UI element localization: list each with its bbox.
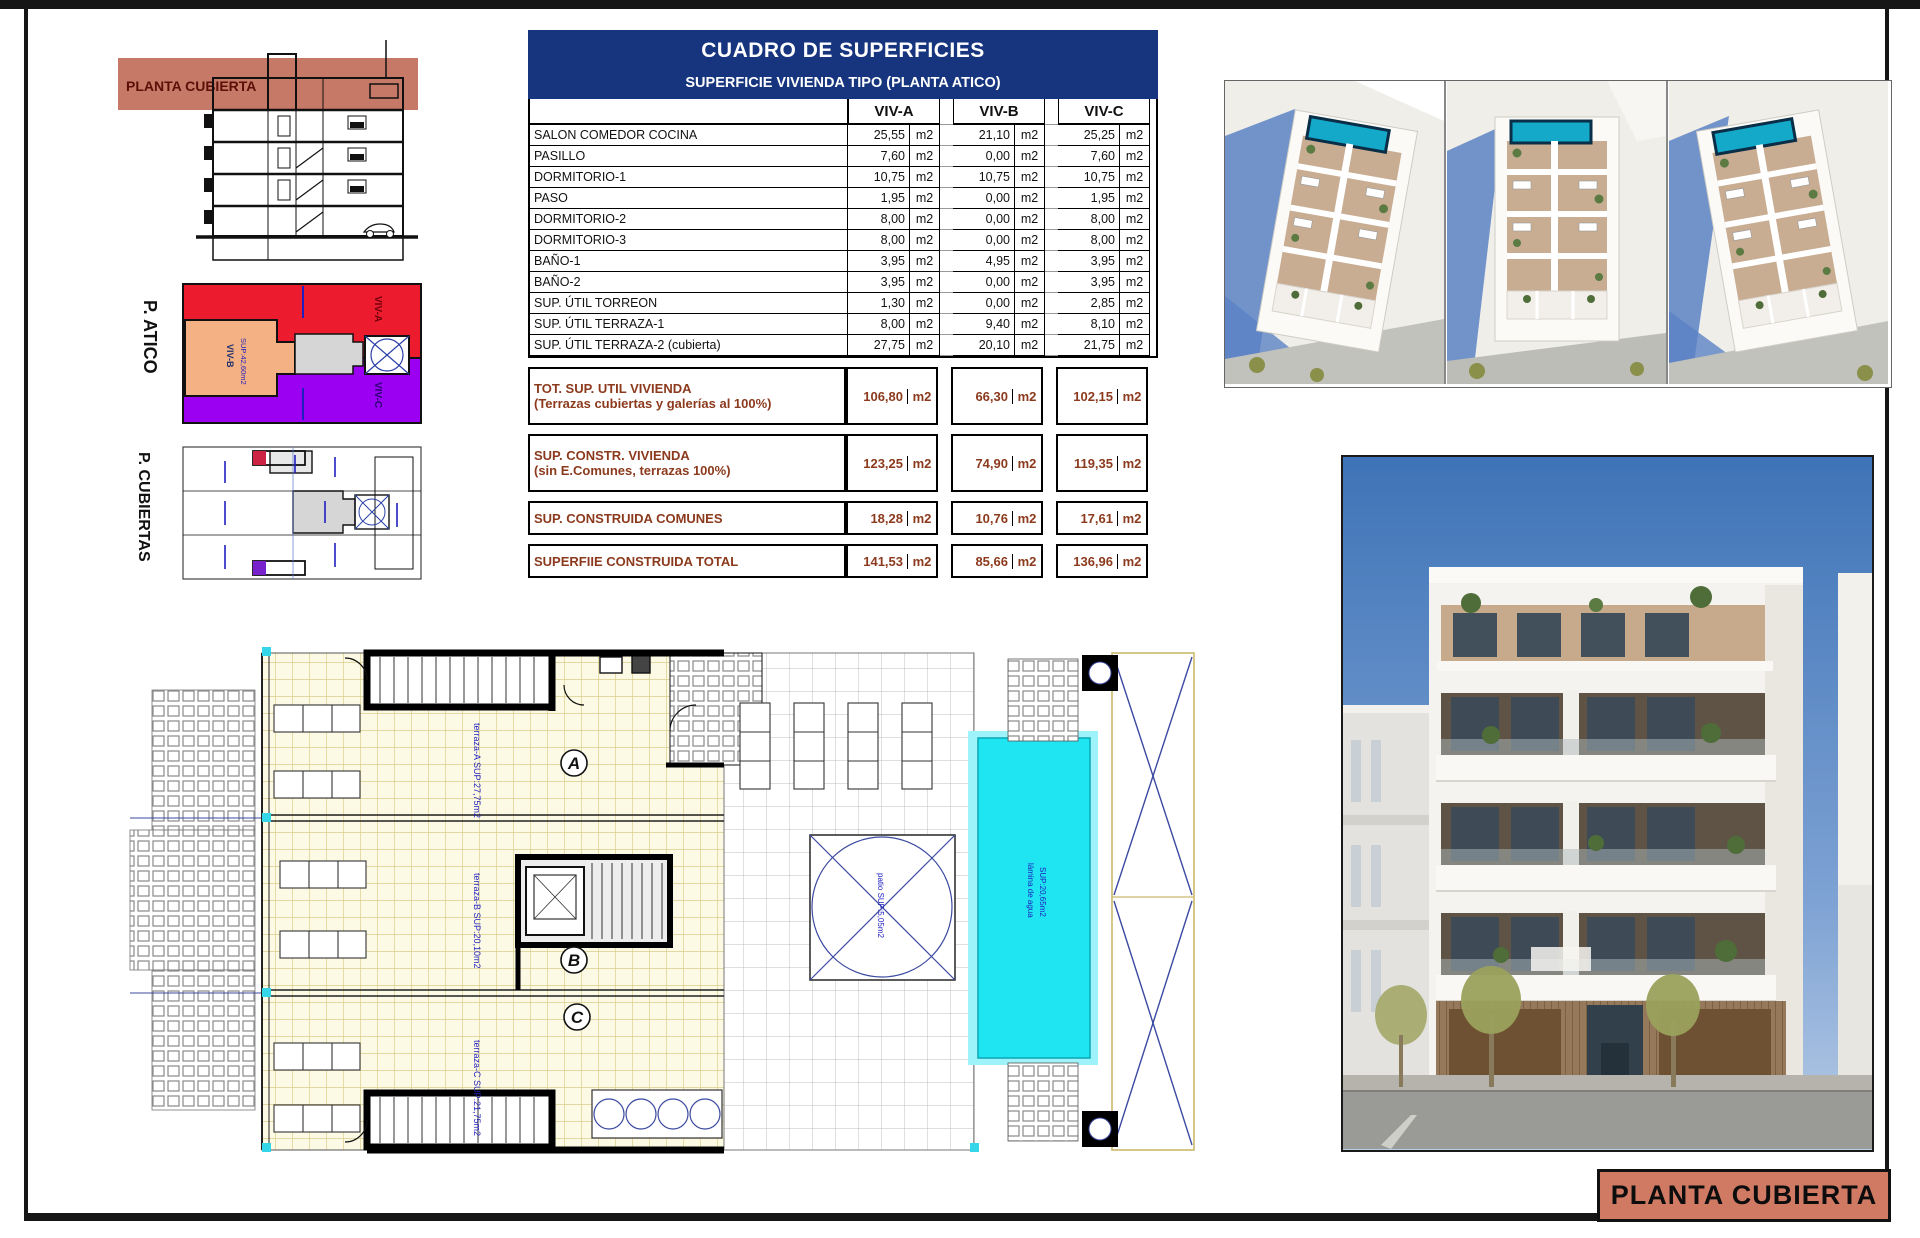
row-label: SUP. ÚTIL TERRAZA-1 xyxy=(530,314,848,335)
table-row: SALON COMEDOR COCINA25,55m221,10m225,25m… xyxy=(530,125,1156,146)
facade-balcony-levels xyxy=(1436,691,1776,1001)
row-gap xyxy=(1045,251,1058,272)
cell-unit-viv-a: m2 xyxy=(910,251,940,272)
summary-value-viv-b: 10,76m2 xyxy=(951,501,1043,535)
summary-value: 17,61 xyxy=(1058,511,1118,526)
cell-value-viv-b: 20,10 xyxy=(953,335,1015,356)
plan-terraza-b-label: terraza-B SUP:20,10m2 xyxy=(472,873,482,969)
row-gap xyxy=(940,146,953,167)
row-label: SUP. ÚTIL TERRAZA-2 (cubierta) xyxy=(530,335,848,356)
facade-right-neighbor xyxy=(1838,573,1872,1149)
cell-unit-viv-c: m2 xyxy=(1120,188,1150,209)
row-label: PASO xyxy=(530,188,848,209)
plan-elevator xyxy=(526,867,584,935)
summary-row: SUPERFIIE CONSTRUIDA TOTAL141,53m285,66m… xyxy=(528,544,1158,578)
cell-value-viv-b: 10,75 xyxy=(953,167,1015,188)
cell-unit-viv-b: m2 xyxy=(1015,230,1045,251)
table-row: PASILLO7,60m20,00m27,60m2 xyxy=(530,146,1156,167)
section-ground xyxy=(196,224,418,238)
cell-value-viv-a: 8,00 xyxy=(848,230,910,251)
table-body: SALON COMEDOR COCINA25,55m221,10m225,25m… xyxy=(530,125,1156,356)
summary-gap xyxy=(938,544,951,578)
summary-value-viv-c: 136,96m2 xyxy=(1056,544,1148,578)
summary-unit: m2 xyxy=(908,456,936,471)
row-label: SUP. ÚTIL TORREON xyxy=(530,293,848,314)
cell-value-viv-a: 25,55 xyxy=(848,125,910,146)
plan-gravel-bottom-right xyxy=(1008,1063,1078,1141)
atico-viv-b-label: VIV-B xyxy=(225,344,235,368)
table-title: CUADRO DE SUPERFICIES xyxy=(528,30,1158,65)
row-label: BAÑO-1 xyxy=(530,251,848,272)
cell-value-viv-b: 0,00 xyxy=(953,188,1015,209)
row-label: DORMITORIO-2 xyxy=(530,209,848,230)
summary-unit: m2 xyxy=(1118,554,1146,569)
atico-color-plan: VIV-A VIV-B SUP:42,60m2 VIV-C xyxy=(175,282,425,425)
row-gap xyxy=(940,167,953,188)
plan-pool-label-1: lámina de agua xyxy=(1026,863,1035,918)
cell-unit-viv-b: m2 xyxy=(1015,167,1045,188)
column-header-viv-a: VIV-A xyxy=(848,99,940,125)
plan-pool-label-2: SUP:20,65m2 xyxy=(1038,867,1047,917)
summary-unit: m2 xyxy=(1118,389,1146,404)
cell-unit-viv-b: m2 xyxy=(1015,251,1045,272)
row-gap xyxy=(1045,314,1058,335)
atico-elevator xyxy=(365,336,409,374)
summary-value-viv-a: 141,53m2 xyxy=(846,544,938,578)
cell-value-viv-c: 10,75 xyxy=(1058,167,1120,188)
cell-unit-viv-b: m2 xyxy=(1015,209,1045,230)
row-gap xyxy=(1045,209,1058,230)
summary-value-viv-c: 102,15m2 xyxy=(1056,367,1148,425)
summary-unit: m2 xyxy=(1013,389,1041,404)
row-gap xyxy=(940,251,953,272)
facade-street xyxy=(1343,1075,1872,1149)
summary-gap xyxy=(938,501,951,535)
row-label: BAÑO-2 xyxy=(530,272,848,293)
cell-unit-viv-b: m2 xyxy=(1015,335,1045,356)
column-header-viv-b: VIV-B xyxy=(953,99,1045,125)
cell-unit-viv-a: m2 xyxy=(910,188,940,209)
summary-gap xyxy=(938,434,951,492)
row-gap xyxy=(1045,146,1058,167)
cell-value-viv-a: 8,00 xyxy=(848,209,910,230)
cubiertas-plan xyxy=(175,443,425,583)
table-row: BAÑO-23,95m20,00m23,95m2 xyxy=(530,272,1156,293)
cell-value-viv-b: 4,95 xyxy=(953,251,1015,272)
summary-value: 141,53 xyxy=(848,554,908,569)
aerial-render-3 xyxy=(1669,81,1888,384)
facade-render xyxy=(1341,455,1874,1152)
cell-unit-viv-c: m2 xyxy=(1120,335,1150,356)
plan-core xyxy=(518,857,670,945)
building-section-drawing: PLANTA CUBIERTA xyxy=(118,28,430,270)
cell-unit-viv-b: m2 xyxy=(1015,188,1045,209)
cubiertas-stair-red xyxy=(253,451,266,465)
plan-patio-label: patio SUP:5,05m2 xyxy=(876,873,885,938)
cell-unit-viv-a: m2 xyxy=(910,335,940,356)
summary-label-line1: SUP. CONSTRUIDA COMUNES xyxy=(534,511,840,526)
cell-unit-viv-a: m2 xyxy=(910,314,940,335)
atico-viv-b-sup: SUP:42,60m2 xyxy=(239,338,248,385)
column-header-viv-c: VIV-C xyxy=(1058,99,1150,125)
row-gap xyxy=(940,230,953,251)
surface-table: CUADRO DE SUPERFICIES SUPERFICIE VIVIEND… xyxy=(528,30,1158,578)
row-gap xyxy=(940,314,953,335)
summary-label-line2: (Terrazas cubiertas y galerías al 100%) xyxy=(534,396,840,411)
cell-unit-viv-b: m2 xyxy=(1015,314,1045,335)
cell-unit-viv-a: m2 xyxy=(910,272,940,293)
cell-value-viv-a: 27,75 xyxy=(848,335,910,356)
table-row: DORMITORIO-38,00m20,00m28,00m2 xyxy=(530,230,1156,251)
cell-value-viv-c: 8,10 xyxy=(1058,314,1120,335)
row-gap xyxy=(940,188,953,209)
cell-value-viv-b: 9,40 xyxy=(953,314,1015,335)
cell-value-viv-b: 21,10 xyxy=(953,125,1015,146)
row-gap xyxy=(1045,167,1058,188)
summary-value: 10,76 xyxy=(953,511,1013,526)
summary-value: 106,80 xyxy=(848,389,908,404)
summary-value-viv-b: 85,66m2 xyxy=(951,544,1043,578)
atico-common-core xyxy=(295,334,363,374)
cell-unit-viv-b: m2 xyxy=(1015,146,1045,167)
summary-value: 102,15 xyxy=(1058,389,1118,404)
plan-water-tanks xyxy=(592,1090,722,1138)
summary-gap xyxy=(1043,501,1056,535)
summary-value-viv-c: 119,35m2 xyxy=(1056,434,1148,492)
cell-value-viv-c: 1,95 xyxy=(1058,188,1120,209)
cell-value-viv-c: 2,85 xyxy=(1058,293,1120,314)
cell-value-viv-a: 1,95 xyxy=(848,188,910,209)
cell-value-viv-a: 10,75 xyxy=(848,167,910,188)
cell-value-viv-b: 0,00 xyxy=(953,209,1015,230)
cell-value-viv-c: 7,60 xyxy=(1058,146,1120,167)
summary-gap xyxy=(938,367,951,425)
atico-viv-c-label: VIV-C xyxy=(372,382,383,408)
row-gap xyxy=(940,125,953,146)
atico-viv-a-label: VIV-A xyxy=(372,296,383,322)
atico-side-label: P. ATICO xyxy=(139,300,160,374)
table-row: SUP. ÚTIL TERRAZA-18,00m29,40m28,10m2 xyxy=(530,314,1156,335)
row-gap xyxy=(1045,293,1058,314)
summary-unit: m2 xyxy=(1013,554,1041,569)
row-gap xyxy=(1045,230,1058,251)
aerial-renders-strip xyxy=(1224,80,1892,388)
cell-value-viv-b: 0,00 xyxy=(953,230,1015,251)
plan-letter-b: B xyxy=(568,951,580,970)
sheet-title-block: PLANTA CUBIERTA xyxy=(1597,1169,1891,1222)
summary-unit: m2 xyxy=(1013,456,1041,471)
row-label: SALON COMEDOR COCINA xyxy=(530,125,848,146)
summary-unit: m2 xyxy=(908,389,936,404)
cell-unit-viv-a: m2 xyxy=(910,167,940,188)
summary-label-line1: SUP. CONSTR. VIVIENDA xyxy=(534,448,840,463)
cell-value-viv-b: 0,00 xyxy=(953,293,1015,314)
aerial-render-1 xyxy=(1225,81,1444,384)
cell-unit-viv-c: m2 xyxy=(1120,293,1150,314)
summary-label-line1: TOT. SUP. UTIL VIVIENDA xyxy=(534,381,840,396)
summary-unit: m2 xyxy=(1118,456,1146,471)
row-gap xyxy=(940,272,953,293)
cell-value-viv-b: 0,00 xyxy=(953,272,1015,293)
sheet-title-label: PLANTA CUBIERTA xyxy=(1611,1180,1877,1211)
summary-unit: m2 xyxy=(1013,511,1041,526)
summary-value: 66,30 xyxy=(953,389,1013,404)
summary-value: 119,35 xyxy=(1058,456,1118,471)
table-row: BAÑO-13,95m24,95m23,95m2 xyxy=(530,251,1156,272)
plan-terraza-a-label: terraza-A SUP:27,75m2 xyxy=(472,723,482,818)
summary-value: 123,25 xyxy=(848,456,908,471)
summary-row: SUP. CONSTR. VIVIENDA(sin E.Comunes, ter… xyxy=(528,434,1158,492)
summary-label-line2: (sin E.Comunes, terrazas 100%) xyxy=(534,463,840,478)
summary-row: TOT. SUP. UTIL VIVIENDA(Terrazas cubiert… xyxy=(528,367,1158,425)
plan-letter-c: C xyxy=(571,1008,584,1027)
cell-value-viv-c: 25,25 xyxy=(1058,125,1120,146)
table-row: DORMITORIO-110,75m210,75m210,75m2 xyxy=(530,167,1156,188)
summary-gap xyxy=(1043,544,1056,578)
cell-value-viv-c: 21,75 xyxy=(1058,335,1120,356)
table-row: DORMITORIO-28,00m20,00m28,00m2 xyxy=(530,209,1156,230)
summary-value-viv-a: 123,25m2 xyxy=(846,434,938,492)
summary-row: SUP. CONSTRUIDA COMUNES18,28m210,76m217,… xyxy=(528,501,1158,535)
summary-label: TOT. SUP. UTIL VIVIENDA(Terrazas cubiert… xyxy=(528,367,846,425)
row-gap xyxy=(940,209,953,230)
cell-unit-viv-a: m2 xyxy=(910,146,940,167)
row-label: PASILLO xyxy=(530,146,848,167)
cell-unit-viv-a: m2 xyxy=(910,125,940,146)
header-gap xyxy=(1045,99,1058,125)
cell-unit-viv-c: m2 xyxy=(1120,167,1150,188)
summary-unit: m2 xyxy=(908,511,936,526)
summary-value-viv-a: 106,80m2 xyxy=(846,367,938,425)
row-gap xyxy=(940,335,953,356)
cell-unit-viv-c: m2 xyxy=(1120,251,1150,272)
summary-value-viv-b: 74,90m2 xyxy=(951,434,1043,492)
cell-unit-viv-c: m2 xyxy=(1120,146,1150,167)
cell-value-viv-a: 1,30 xyxy=(848,293,910,314)
summary-value: 85,66 xyxy=(953,554,1013,569)
cell-value-viv-a: 3,95 xyxy=(848,251,910,272)
cell-value-viv-c: 8,00 xyxy=(1058,230,1120,251)
cell-unit-viv-c: m2 xyxy=(1120,209,1150,230)
table-row: PASO1,95m20,00m21,95m2 xyxy=(530,188,1156,209)
cell-unit-viv-a: m2 xyxy=(910,230,940,251)
row-label: DORMITORIO-1 xyxy=(530,167,848,188)
row-label: DORMITORIO-3 xyxy=(530,230,848,251)
summary-label: SUP. CONSTR. VIVIENDA(sin E.Comunes, ter… xyxy=(528,434,846,492)
plan-letter-a: A xyxy=(567,754,580,773)
header-gap xyxy=(940,99,953,125)
roof-floor-plan: A B C patio SUP:5,05m2 lámina de agua SU… xyxy=(122,645,1197,1158)
summary-value: 74,90 xyxy=(953,456,1013,471)
cell-value-viv-a: 3,95 xyxy=(848,272,910,293)
row-gap xyxy=(1045,272,1058,293)
plan-left-gravel-terrace xyxy=(130,690,255,1110)
cell-unit-viv-b: m2 xyxy=(1015,272,1045,293)
summary-label: SUPERFIIE CONSTRUIDA TOTAL xyxy=(528,544,846,578)
sheet-border-top xyxy=(0,0,1920,9)
summary-unit: m2 xyxy=(908,554,936,569)
cell-value-viv-a: 7,60 xyxy=(848,146,910,167)
plan-top-stairs xyxy=(345,653,552,707)
summary-value: 136,96 xyxy=(1058,554,1118,569)
cell-unit-viv-c: m2 xyxy=(1120,125,1150,146)
table-row: SUP. ÚTIL TORREON1,30m20,00m22,85m2 xyxy=(530,293,1156,314)
row-gap xyxy=(1045,125,1058,146)
cell-unit-viv-a: m2 xyxy=(910,209,940,230)
table-header-row: VIV-AVIV-BVIV-C xyxy=(530,99,1156,125)
plan-gravel-top-right xyxy=(1008,659,1078,741)
cubiertas-side-label: P. CUBIERTAS xyxy=(134,452,152,562)
plan-right-annex xyxy=(1112,653,1194,1150)
cell-unit-viv-c: m2 xyxy=(1120,272,1150,293)
row-gap xyxy=(940,293,953,314)
sheet-border-left xyxy=(24,9,28,1216)
row-gap xyxy=(1045,188,1058,209)
cell-value-viv-c: 3,95 xyxy=(1058,251,1120,272)
cell-unit-viv-c: m2 xyxy=(1120,314,1150,335)
summary-gap xyxy=(1043,367,1056,425)
summary-gap xyxy=(1043,434,1056,492)
cell-value-viv-c: 8,00 xyxy=(1058,209,1120,230)
summary-value-viv-c: 17,61m2 xyxy=(1056,501,1148,535)
cubiertas-stair-purple xyxy=(253,561,266,575)
summary-value: 18,28 xyxy=(848,511,908,526)
summary-label-line1: SUPERFIIE CONSTRUIDA TOTAL xyxy=(534,554,840,569)
section-balconies xyxy=(204,114,364,224)
table-summary: TOT. SUP. UTIL VIVIENDA(Terrazas cubiert… xyxy=(528,367,1158,578)
cell-unit-viv-a: m2 xyxy=(910,293,940,314)
cell-value-viv-c: 3,95 xyxy=(1058,272,1120,293)
summary-value-viv-a: 18,28m2 xyxy=(846,501,938,535)
cell-unit-viv-b: m2 xyxy=(1015,125,1045,146)
cell-unit-viv-b: m2 xyxy=(1015,293,1045,314)
summary-value-viv-b: 66,30m2 xyxy=(951,367,1043,425)
cell-unit-viv-c: m2 xyxy=(1120,230,1150,251)
row-gap xyxy=(1045,335,1058,356)
table-corner-cell xyxy=(530,99,848,125)
aerial-render-2 xyxy=(1447,81,1666,384)
table-subtitle: SUPERFICIE VIVIENDA TIPO (PLANTA ATICO) xyxy=(528,65,1158,99)
table-row: SUP. ÚTIL TERRAZA-2 (cubierta)27,75m220,… xyxy=(530,335,1156,356)
cell-value-viv-a: 8,00 xyxy=(848,314,910,335)
section-band-label: PLANTA CUBIERTA xyxy=(126,78,256,94)
summary-label: SUP. CONSTRUIDA COMUNES xyxy=(528,501,846,535)
summary-unit: m2 xyxy=(1118,511,1146,526)
cell-value-viv-b: 0,00 xyxy=(953,146,1015,167)
plan-bottom-stairs xyxy=(345,1093,552,1147)
plan-terraza-c-label: terraza-C SUP:21,75m2 xyxy=(472,1040,482,1136)
